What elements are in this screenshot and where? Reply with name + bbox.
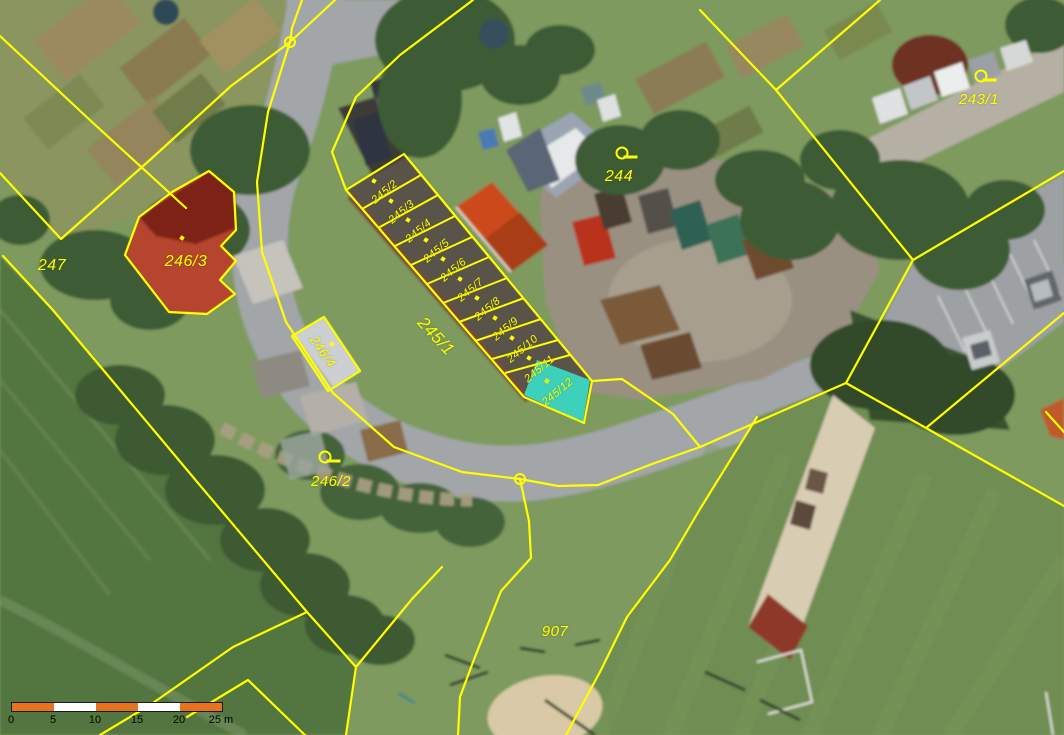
scale-bar-segment [138, 703, 180, 711]
scale-bar: 0510152025 m [11, 702, 223, 712]
scale-bar-segment [96, 703, 138, 711]
scale-bar-segment [12, 703, 54, 711]
scale-bar-track [11, 702, 223, 712]
orthophoto-layer [0, 0, 1064, 735]
map-viewport[interactable]: 247246/3246/4246/2245/1245/2245/3245/424… [0, 0, 1064, 735]
scale-bar-tick-label: 25 m [209, 714, 233, 726]
scale-bar-tick-label: 10 [89, 714, 101, 726]
scale-bar-tick-label: 0 [8, 714, 14, 726]
scale-bar-tick-label: 20 [173, 714, 185, 726]
scale-bar-segment [180, 703, 222, 711]
aerial-imagery [0, 0, 1064, 735]
scale-bar-tick-label: 5 [50, 714, 56, 726]
scale-bar-tick-label: 15 [131, 714, 143, 726]
scale-bar-segment [54, 703, 96, 711]
